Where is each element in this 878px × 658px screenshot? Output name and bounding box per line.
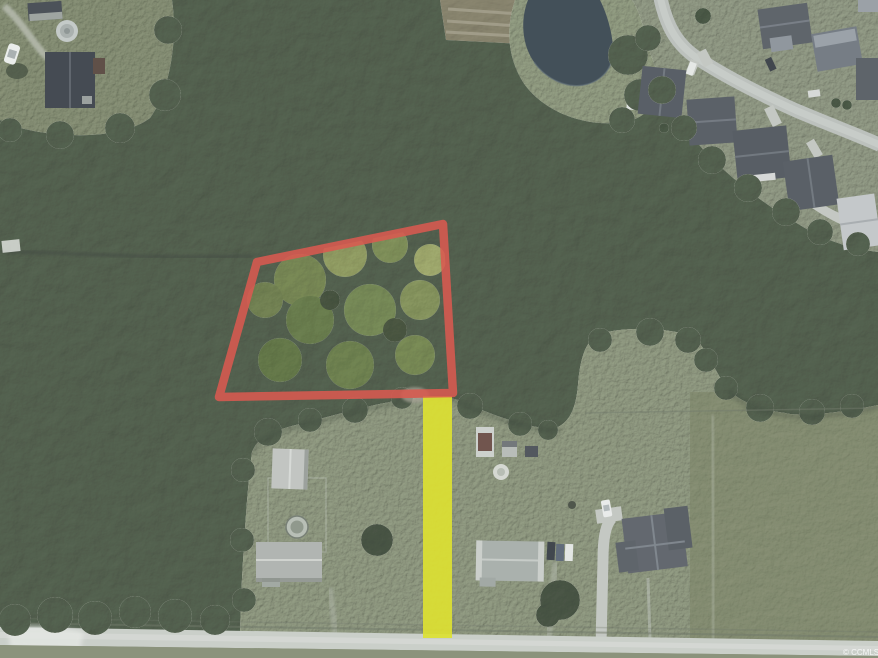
photo-tone — [0, 0, 878, 658]
mls-watermark: © CCMLS — [843, 648, 878, 657]
aerial-photo-canvas: © CCMLS — [0, 0, 878, 658]
aerial-photo: © CCMLS — [0, 0, 878, 658]
